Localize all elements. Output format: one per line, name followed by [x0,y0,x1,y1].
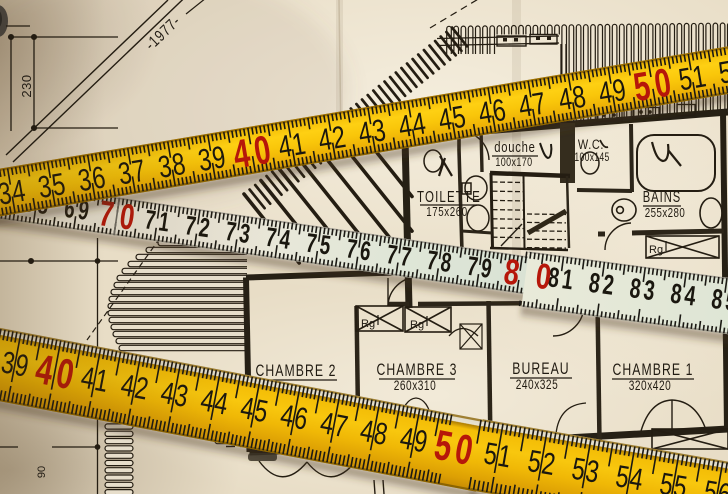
svg-text:CHAMBRE 2: CHAMBRE 2 [255,362,336,380]
svg-text:W.C.: W.C. [578,137,604,153]
svg-text:Rg: Rg [649,244,663,256]
svg-text:175x260: 175x260 [426,206,468,220]
svg-text:240x325: 240x325 [516,377,558,393]
svg-text:230: 230 [19,74,34,97]
svg-text:BAINS: BAINS [643,188,682,205]
svg-text:260x310: 260x310 [394,378,436,394]
svg-text:90: 90 [36,466,48,478]
svg-text:320x420: 320x420 [629,378,671,394]
svg-text:100x170: 100x170 [495,156,532,170]
svg-text:100x145: 100x145 [574,152,609,164]
svg-text:TOILETTE: TOILETTE [417,187,481,205]
svg-text:255x280: 255x280 [645,207,686,221]
svg-text:Rg: Rg [361,318,375,330]
svg-text:Rg: Rg [410,319,424,331]
